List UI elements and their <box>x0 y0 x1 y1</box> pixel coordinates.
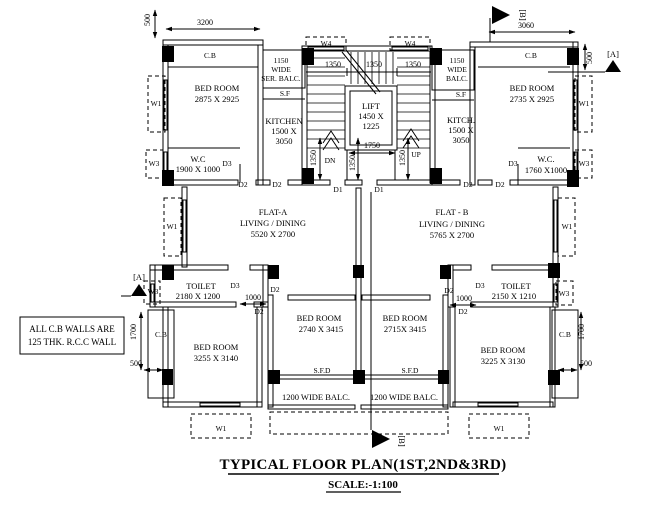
ser-balc-line3: SER. BALC. <box>261 74 301 83</box>
ser-balc-line2: WIDE <box>271 65 291 74</box>
flat-b-name: FLAT - B <box>436 207 469 217</box>
dim-1350-b: 1350 <box>366 60 382 69</box>
closet-top-left: C.B <box>204 51 216 60</box>
window-w3-top-left: W3 <box>149 159 160 168</box>
dim-1700-left: 1700 <box>129 324 138 340</box>
section-a-left-flag-icon <box>131 284 147 296</box>
note-box: ALL C.B WALLS ARE 125 THK. R.C.C WALL <box>20 317 124 354</box>
dim-1350-d: 1350 <box>309 150 318 166</box>
note-line-2: 125 THK. R.C.C WALL <box>28 337 116 347</box>
window-w4-right: W4 <box>405 39 416 48</box>
lift-name: LIFT <box>362 101 381 111</box>
window-w1-top-left: W1 <box>151 99 162 108</box>
door-d3-wc-right: D3 <box>508 159 517 168</box>
balc-bottom-right-label: 1200 WIDE BALC. <box>370 392 438 402</box>
window-w1-mid-right: W1 <box>562 222 573 231</box>
section-b-bottom-flag-icon <box>372 430 390 448</box>
door-d2-bed-center-left: D2 <box>270 285 279 294</box>
window-w4-left: W4 <box>321 39 332 48</box>
stair-up-label: UP <box>411 150 421 159</box>
door-d1-flat-b: D1 <box>374 185 383 194</box>
wc-left-name: W.C <box>190 154 205 164</box>
wc-right-name: W.C. <box>537 154 554 164</box>
kitchen-right-name: KITCH. <box>447 115 475 125</box>
closet-bottom-right: C.B <box>559 330 571 339</box>
bed-bottom-center-left-size: 2740 X 3415 <box>299 324 343 334</box>
sfd-right: S.F.D <box>402 366 419 375</box>
balc-bottom-left-label: 1200 WIDE BALC. <box>282 392 350 402</box>
dim-1000-right: 1000 <box>456 294 472 303</box>
section-b-bottom-label: [B] <box>397 435 407 447</box>
balc-right-line3: BALC. <box>446 74 468 83</box>
bed-top-right-size: 2735 X 2925 <box>510 94 554 104</box>
bed-bottom-left-size: 3255 X 3140 <box>194 353 238 363</box>
dim-1350-a: 1350 <box>325 60 341 69</box>
section-b-top-label: [B] <box>518 9 528 21</box>
closet-top-right: C.B <box>525 51 537 60</box>
balc-right-line2: WIDE <box>447 65 467 74</box>
toilet-left-size: 2180 X 1200 <box>176 291 220 301</box>
ser-balc-line1: 1150 <box>274 56 289 65</box>
shelf-right: S.F <box>456 90 466 99</box>
bed-top-right-name: BED ROOM <box>510 83 555 93</box>
dim-3060: 3060 <box>518 21 534 30</box>
flat-b-size: 5765 X 2700 <box>430 230 474 240</box>
door-d2-2: D2 <box>272 180 281 189</box>
wc-left-size: 1900 X 1000 <box>176 164 220 174</box>
dim-500-bottom-left: 500 <box>130 359 142 368</box>
flat-a-room: LIVING / DINING <box>240 218 306 228</box>
window-w1-mid-left: W1 <box>167 222 178 231</box>
flat-a-size: 5520 X 2700 <box>251 229 295 239</box>
closet-bottom-left: C.B <box>155 330 167 339</box>
window-w3-toilet-right: W3 <box>559 289 570 298</box>
door-d2-bed-right: D2 <box>458 307 467 316</box>
stair-down-label: DN <box>325 156 336 165</box>
door-d3-toilet-left: D3 <box>230 281 239 290</box>
kitchen-left-size1: 1500 X <box>271 126 296 136</box>
toilet-right-name: TOILET <box>501 281 531 291</box>
flat-a-name: FLAT-A <box>259 207 288 217</box>
floor-plan-canvas: ALL C.B WALLS ARE 125 THK. R.C.C WALL 32… <box>0 0 657 507</box>
door-d3-wc-left: D3 <box>222 159 231 168</box>
section-a-right-flag-icon <box>605 60 621 72</box>
kitchen-right-size1: 1500 X <box>448 125 473 135</box>
up-arrow-icon <box>403 129 419 148</box>
bed-bottom-right-name: BED ROOM <box>481 345 526 355</box>
door-d2-bed-center-right: D2 <box>444 286 453 295</box>
door-d2-bed-left: D2 <box>254 307 263 316</box>
labels: 3200 500 3060 500 C.B C.B C.B C.B S.F S.… <box>129 9 619 447</box>
wc-right-size: 1760 X1000 <box>525 165 567 175</box>
section-a-left-label: [A] <box>133 272 145 282</box>
kitchen-left-name: KITCHEN <box>265 116 302 126</box>
bed-bottom-center-left-name: BED ROOM <box>297 313 342 323</box>
window-w1-bottom-left: W1 <box>216 424 227 433</box>
kitchen-left-size2: 3050 <box>276 136 293 146</box>
dim-1350-f: 1350 <box>398 150 407 166</box>
dim-1700-right: 1700 <box>577 324 586 340</box>
dimension-lines <box>141 10 585 370</box>
door-d3-toilet-right: D3 <box>475 281 484 290</box>
floor-plan: ALL C.B WALLS ARE 125 THK. R.C.C WALL 32… <box>0 0 657 507</box>
door-d1-flat-a: D1 <box>333 185 342 194</box>
dim-1350-c: 1350 <box>405 60 421 69</box>
toilet-right-size: 2150 X 1210 <box>492 291 536 301</box>
door-d2-1: D2 <box>238 180 247 189</box>
bed-bottom-right-size: 3225 X 3130 <box>481 356 525 366</box>
bed-bottom-center-right-name: BED ROOM <box>383 313 428 323</box>
bed-bottom-center-right-size: 2715X 3415 <box>384 324 426 334</box>
down-arrow-icon <box>323 131 339 150</box>
balc-right-line1: 1150 <box>450 56 465 65</box>
door-d2-4: D2 <box>495 180 504 189</box>
bed-top-left-name: BED ROOM <box>195 83 240 93</box>
bed-top-left-size: 2875 X 2925 <box>195 94 239 104</box>
shelf-left: S.F <box>280 89 290 98</box>
dim-3200: 3200 <box>197 18 213 27</box>
dim-500-top-left: 500 <box>143 14 152 26</box>
lift-size1: 1450 X <box>358 111 383 121</box>
dim-500-bottom-right: 500 <box>580 359 592 368</box>
toilet-left-name: TOILET <box>186 281 216 291</box>
flat-b-room: LIVING / DINING <box>419 219 485 229</box>
window-w1-top-right: W1 <box>579 99 590 108</box>
lift-size2: 1225 <box>363 121 380 131</box>
title-block: TYPICAL FLOOR PLAN(1ST,2ND&3RD) SCALE:-1… <box>220 457 507 492</box>
dim-1000-left: 1000 <box>245 293 261 302</box>
window-w3-toilet-left: W3 <box>148 287 159 296</box>
drawing-title: TYPICAL FLOOR PLAN(1ST,2ND&3RD) <box>220 457 507 473</box>
drawing-scale: SCALE:-1:100 <box>328 479 398 491</box>
dim-1750: 1750 <box>364 141 380 150</box>
dim-1350-e: 1350 <box>348 155 357 171</box>
section-a-right-label: [A] <box>607 49 619 59</box>
note-line-1: ALL C.B WALLS ARE <box>29 324 115 334</box>
kitchen-right-size2: 3050 <box>453 135 470 145</box>
window-w3-top-right: W3 <box>579 159 590 168</box>
sfd-left: S.F.D <box>314 366 331 375</box>
dim-500-top-right: 500 <box>585 52 594 64</box>
window-w1-bottom-right: W1 <box>494 424 505 433</box>
section-b-top-flag-icon <box>492 6 510 24</box>
door-d2-3: D2 <box>463 180 472 189</box>
bed-bottom-left-name: BED ROOM <box>194 342 239 352</box>
